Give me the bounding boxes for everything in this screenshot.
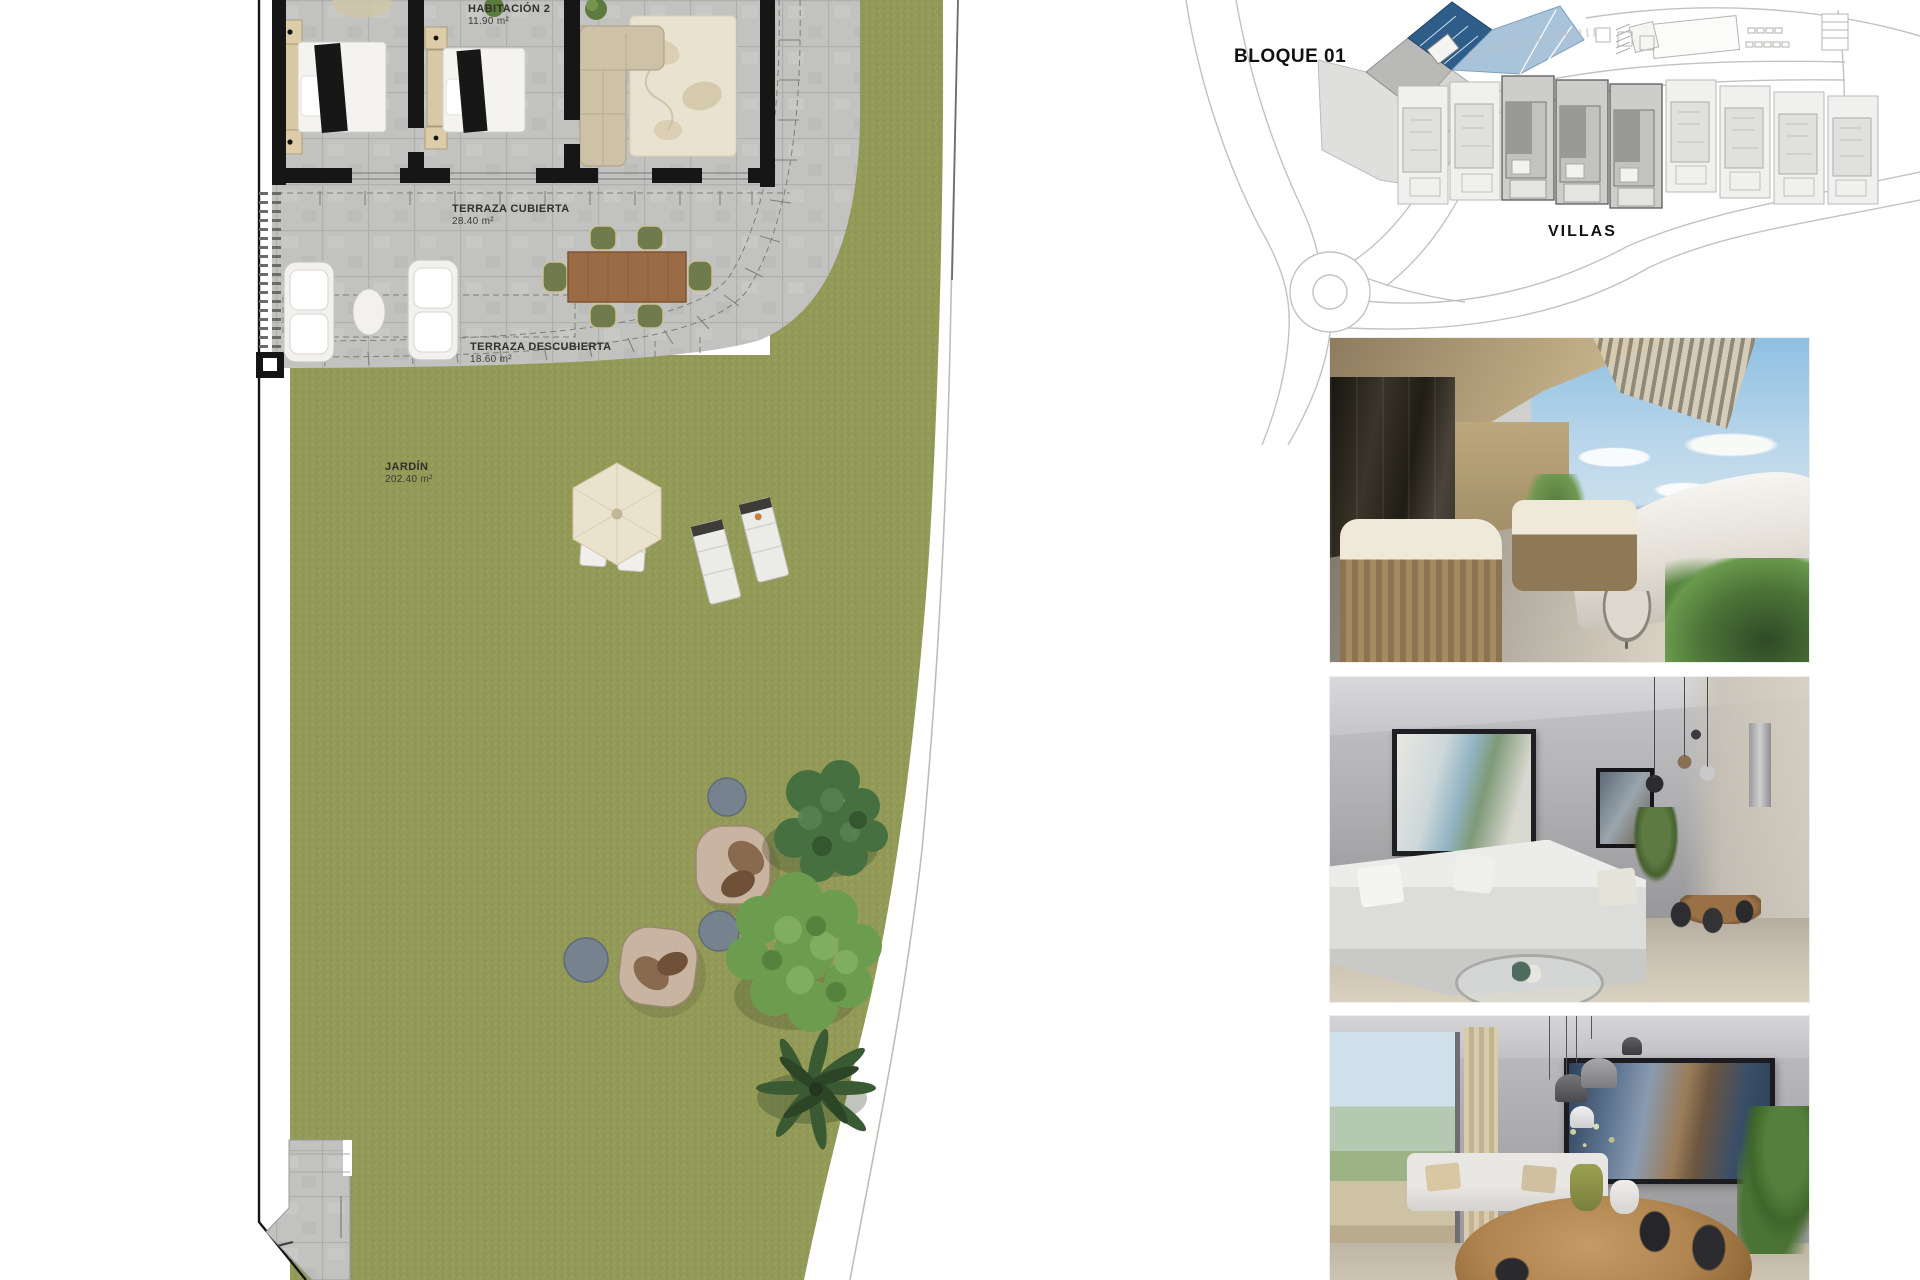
terraza-cubierta-label: TERRAZA CUBIERTA [452,203,570,215]
table-decor [1512,960,1541,983]
photo-terrace-render [1330,338,1809,662]
habitacion2-area: 11.90 m² [468,16,509,27]
sofa-pillow-3 [1597,867,1638,906]
sofa-pillow-tan-2 [1521,1165,1557,1194]
room-label-jardin: JARDÍN 202.40 m² [385,460,433,485]
side-table [1598,591,1655,649]
black-chair-left [1474,1248,1551,1280]
wall-art-large [1392,729,1536,856]
entry-paving [266,1140,352,1280]
pendant-lights [1627,677,1742,814]
plant [1632,807,1680,885]
rattan-sofa [1512,500,1637,591]
jardin-area: 202.40 m² [385,474,433,485]
black-chairs [1617,1196,1751,1280]
sofa-pillow-2 [1453,854,1495,894]
pendant-dome-4 [1622,1037,1642,1055]
rattan-armchair [1340,519,1503,662]
fence-hatch [259,186,281,352]
habitacion2-label: HABITACIÓN 2 [468,2,550,15]
pendant-stems [1512,1016,1637,1122]
photo-dining-room-render [1330,1016,1809,1280]
villas-label: VILLAS [1548,223,1617,240]
roundabout [1290,252,1370,332]
jardin-label: JARDÍN [385,460,428,473]
terraza-descubierta-area: 18.60 m² [470,354,512,365]
bloque01-label: BLOQUE 01 [1234,46,1346,67]
plot-boundary-right-top [952,0,958,280]
photo-living-room-render [1330,677,1809,1002]
floor-plan: HABITACIÓN 2 11.90 m² TERRAZA CUBIERTA 2… [256,0,958,1280]
flower-sprigs [1550,1116,1627,1169]
pendant-dome-2 [1581,1058,1617,1088]
dining-chairs [1665,885,1770,944]
sofa-pillow-tan [1425,1162,1461,1192]
sofa-pillow-1 [1356,863,1404,908]
terraza-descubierta-label: TERRAZA DESCUBIERTA [470,341,611,353]
site-top-structures [1596,14,1848,58]
building [272,0,775,187]
planter-greenery [1665,558,1809,662]
kitchen-hood [1749,723,1771,808]
entry-gate-marker [256,352,284,378]
terraza-cubierta-area: 28.40 m² [452,216,494,227]
table-vase [1570,1164,1604,1212]
villas-highlighted [1502,76,1662,208]
brochure-page: HABITACIÓN 2 11.90 m² TERRAZA CUBIERTA 2… [0,0,1920,1280]
